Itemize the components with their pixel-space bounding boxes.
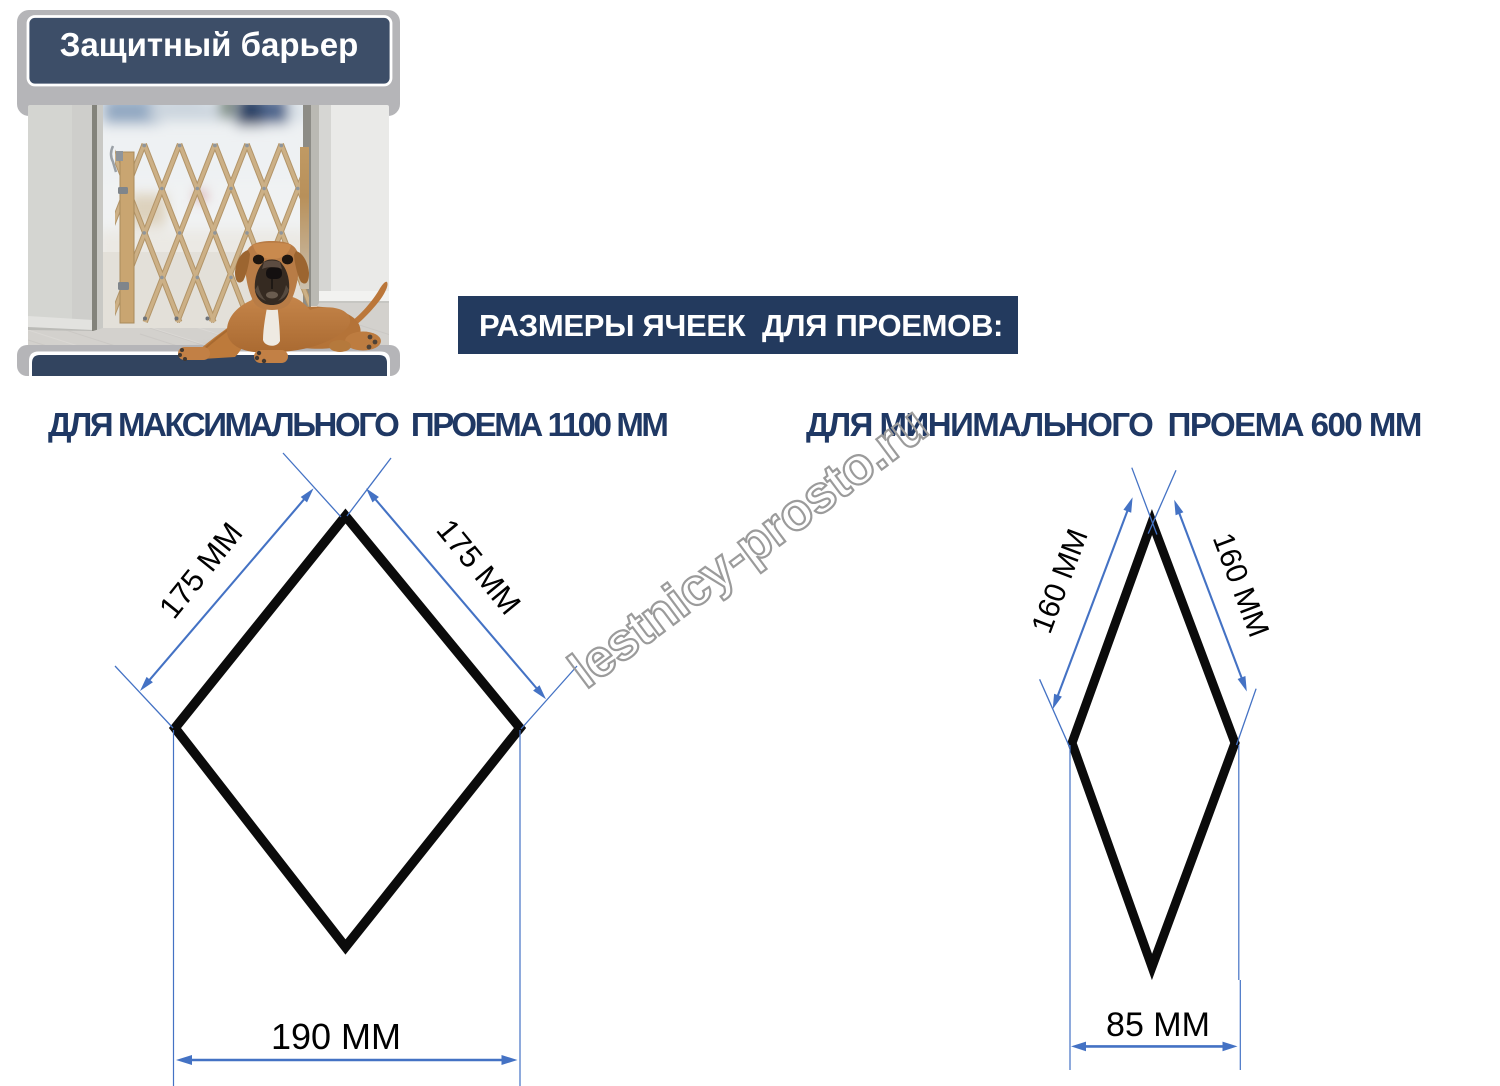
svg-text:ДЛЯ МАКСИМАЛЬНОГО ПРОЕМА 1100: ДЛЯ МАКСИМАЛЬНОГО ПРОЕМА 1100 ММ (48, 406, 667, 443)
svg-text:160 ММ: 160 ММ (1026, 525, 1095, 638)
svg-text:160 ММ: 160 ММ (1206, 529, 1275, 642)
svg-text:85 ММ: 85 ММ (1106, 1006, 1210, 1044)
svg-text:190 ММ: 190 ММ (271, 1016, 401, 1057)
svg-text:Защитный барьер: Защитный барьер (60, 26, 359, 63)
svg-text:РАЗМЕРЫ ЯЧЕЕК ДЛЯ ПРОЕМОВ:: РАЗМЕРЫ ЯЧЕЕК ДЛЯ ПРОЕМОВ: (479, 308, 1003, 343)
svg-text:175 ММ: 175 ММ (430, 512, 528, 621)
svg-text:175 ММ: 175 ММ (152, 516, 249, 625)
